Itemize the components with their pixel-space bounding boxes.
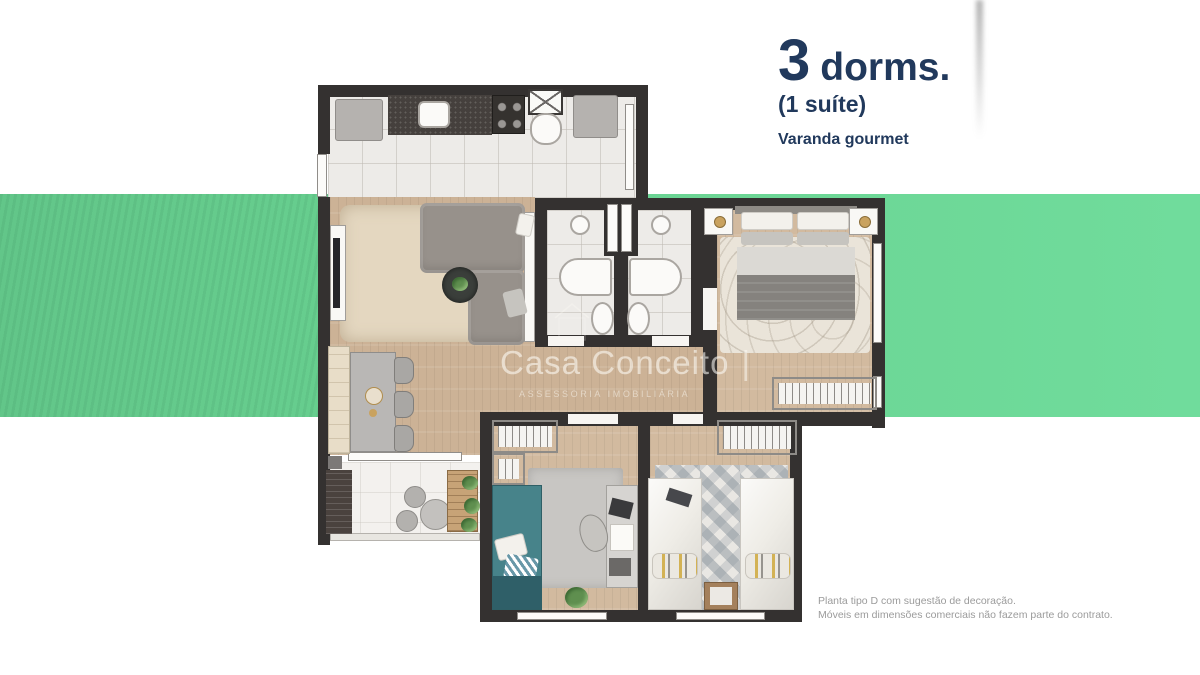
bedroom3-wardrobe: [717, 420, 797, 455]
balcony-plant-2: [464, 498, 480, 514]
bath-sink-left: [570, 215, 590, 235]
tv-icon: [333, 238, 340, 308]
bed-blanket: [737, 275, 855, 320]
washing-machine: [573, 95, 618, 138]
twin-bed-left: [648, 478, 702, 610]
bed-accessory: [666, 488, 693, 508]
slide-canvas: Casa Conceito| ASSESSORIA IMOBILIÁRIA 3 …: [0, 0, 1200, 675]
bath-sink-right: [651, 215, 671, 235]
bolster-pillow: [652, 553, 698, 579]
window-bedroom3: [676, 612, 765, 620]
coffee-table-plant: [452, 277, 468, 291]
teal-bed: [492, 485, 542, 610]
pillow: [741, 212, 793, 230]
shower-glass-left: [607, 204, 618, 252]
pouf-stool-2: [396, 510, 418, 532]
fridge: [335, 99, 383, 141]
balcony-sliding-door: [348, 452, 462, 461]
watermark-brand: Casa Conceito|: [500, 344, 751, 382]
window-bedroom2: [517, 612, 607, 620]
coffee-table: [442, 267, 478, 303]
table-decor: [365, 387, 383, 405]
bathtub-left: [559, 258, 612, 296]
balcony-railing: [330, 533, 480, 541]
door-suite: [703, 288, 717, 330]
sofa-horizontal: [420, 203, 525, 273]
desk-box: [609, 558, 631, 576]
dining-chair-1: [394, 357, 414, 384]
door-bedroom3: [673, 414, 703, 424]
wall-kitchen-right: [636, 97, 648, 198]
master-bed: [735, 206, 857, 322]
shower-glass-right: [621, 204, 632, 252]
wall-bedroom2-left: [480, 426, 492, 622]
wall-kitchen-left: [318, 97, 330, 154]
window-kitchen-left: [317, 154, 327, 197]
bedroom2-closet-top: [492, 420, 558, 453]
bedroom3-nightstand: [704, 582, 738, 610]
window-laundry: [625, 104, 634, 190]
floor-plan: Casa Conceito| ASSESSORIA IMOBILIÁRIA: [0, 0, 1200, 675]
pillow-gray: [797, 232, 849, 245]
bedroom2-plant: [565, 587, 588, 608]
desk-paper: [610, 524, 634, 551]
door-bedroom2: [568, 414, 618, 424]
balcony-box: [328, 456, 342, 469]
laundry-tank: [530, 113, 562, 145]
disclaimer: Planta tipo D com sugestão de decoração.…: [818, 595, 1113, 623]
dining-bench: [328, 346, 350, 454]
lamp-icon: [859, 216, 871, 228]
dorm-unit-label: dorms.: [820, 48, 950, 87]
grill-counter: [326, 470, 352, 534]
suite-note: (1 suíte): [778, 91, 950, 118]
toilet-left: [591, 302, 614, 335]
balcony-plant-1: [462, 476, 478, 490]
watermark-separator: |: [741, 344, 751, 381]
nightstand-top: [710, 587, 732, 605]
bolster-pillow: [745, 553, 791, 579]
kitchen-sink: [418, 101, 450, 128]
nightstand-left: [704, 208, 733, 235]
dining-chair-2: [394, 391, 414, 418]
disclaimer-line-2: Móveis em dimensões comerciais não fazem…: [818, 609, 1113, 623]
wall-bath-middle: [614, 256, 628, 347]
teal-blanket: [493, 576, 541, 609]
pillow: [797, 212, 849, 230]
watermark-house-icon: [552, 300, 592, 349]
dorm-count: 3: [778, 32, 810, 90]
unit-title-block: 3 dorms. (1 suíte) Varanda gourmet: [778, 32, 950, 149]
toilet-right: [627, 302, 650, 335]
twin-bed-right: [740, 478, 794, 610]
feature-label: Varanda gourmet: [778, 131, 950, 149]
bedroom2-closet-side: [492, 453, 525, 485]
balcony-plant-3: [461, 518, 477, 532]
duct-shaft: [528, 89, 563, 115]
window-suite-main: [873, 243, 882, 343]
watermark-subtitle: ASSESSORIA IMOBILIÁRIA: [519, 389, 690, 399]
stove-icon: [492, 95, 525, 134]
bathtub-right: [629, 258, 682, 296]
dining-chair-3: [394, 425, 414, 452]
title-row: 3 dorms.: [778, 32, 950, 90]
dining-table: [350, 352, 396, 452]
bed-sheet: [737, 247, 855, 275]
nightstand-right: [849, 208, 878, 235]
lamp-icon: [714, 216, 726, 228]
suite-wardrobe: [772, 377, 877, 410]
disclaimer-line-1: Planta tipo D com sugestão de decoração.: [818, 595, 1113, 609]
wall-bath-left: [535, 210, 547, 347]
table-decor-small: [369, 409, 377, 417]
pillow-gray: [741, 232, 793, 245]
wall-bath-right: [691, 210, 703, 347]
